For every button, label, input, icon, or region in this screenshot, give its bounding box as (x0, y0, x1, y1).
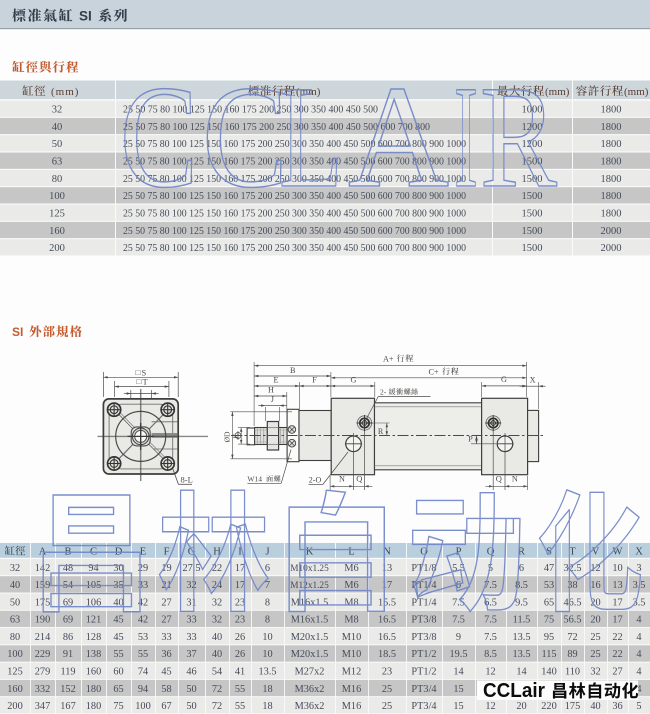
svg-text:(mm): (mm) (624, 86, 649, 98)
svg-text:25 50 75 80 100 125 150 160 17: 25 50 75 80 100 125 150 160 175 200 250 … (123, 243, 466, 254)
svg-text:11.5: 11.5 (513, 615, 531, 626)
svg-text:B: B (290, 366, 296, 375)
svg-text:W14: W14 (247, 474, 262, 483)
svg-text:25: 25 (590, 649, 600, 660)
svg-text:72: 72 (567, 632, 577, 643)
svg-text:160: 160 (49, 226, 65, 237)
svg-text:SI: SI (79, 9, 92, 24)
svg-text:13: 13 (382, 563, 392, 574)
svg-text:N: N (512, 475, 518, 484)
svg-text:2000: 2000 (601, 226, 622, 237)
svg-text:T: T (569, 547, 576, 558)
svg-text:27.5: 27.5 (182, 563, 200, 574)
svg-text:89: 89 (567, 649, 577, 660)
svg-text:27: 27 (612, 667, 622, 678)
svg-text:40: 40 (212, 649, 222, 660)
svg-text:10: 10 (262, 632, 272, 643)
svg-text:125: 125 (49, 209, 65, 220)
svg-text:4: 4 (636, 632, 641, 643)
svg-text:G: G (351, 376, 357, 385)
svg-text:160: 160 (86, 667, 101, 678)
svg-text:119: 119 (60, 667, 75, 678)
svg-text:25: 25 (382, 684, 392, 695)
svg-text:M10x1.25: M10x1.25 (290, 564, 329, 574)
svg-text:1800: 1800 (601, 174, 622, 185)
svg-text:M8: M8 (344, 615, 358, 626)
svg-text:M10: M10 (342, 649, 361, 660)
svg-text:32: 32 (590, 667, 600, 678)
svg-text:13: 13 (612, 580, 622, 591)
svg-text:65: 65 (113, 684, 123, 695)
svg-text:PT1/4: PT1/4 (411, 597, 436, 608)
svg-text:23: 23 (235, 615, 245, 626)
svg-text:J: J (265, 547, 269, 558)
svg-text:17: 17 (235, 580, 245, 591)
svg-text:F: F (312, 376, 317, 385)
svg-text:100: 100 (7, 649, 22, 660)
svg-text:2-O: 2-O (309, 476, 322, 485)
svg-text:T: T (143, 377, 149, 387)
svg-text:80: 80 (10, 632, 20, 643)
svg-text:55: 55 (235, 684, 245, 695)
svg-text:26: 26 (235, 632, 245, 643)
svg-text:20: 20 (516, 701, 526, 712)
svg-text:M20x1.5: M20x1.5 (291, 632, 328, 643)
svg-text:17: 17 (612, 597, 622, 608)
svg-text:55: 55 (235, 701, 245, 712)
svg-text:M36x2: M36x2 (295, 701, 325, 712)
svg-text:C+: C+ (429, 367, 439, 376)
svg-text:200: 200 (7, 701, 22, 712)
svg-text:46.5: 46.5 (563, 597, 581, 608)
svg-text:125: 125 (7, 667, 22, 678)
svg-text:1800: 1800 (601, 122, 622, 133)
svg-text:94: 94 (88, 563, 98, 574)
svg-text:121: 121 (86, 615, 101, 626)
svg-text:H: H (213, 547, 221, 558)
svg-text:32: 32 (10, 563, 20, 574)
svg-text:75: 75 (113, 701, 123, 712)
svg-text:G: G (501, 375, 507, 384)
svg-text:1800: 1800 (601, 209, 622, 220)
svg-text:47: 47 (544, 563, 554, 574)
svg-text:159: 159 (35, 580, 50, 591)
svg-text:I: I (454, 55, 478, 218)
svg-text:SI: SI (12, 325, 23, 339)
svg-text:2000: 2000 (601, 243, 622, 254)
svg-text:17: 17 (235, 563, 245, 574)
svg-text:36: 36 (161, 649, 171, 660)
svg-text:10: 10 (612, 563, 622, 574)
svg-text:19.5: 19.5 (449, 649, 467, 660)
svg-text:46: 46 (186, 667, 196, 678)
svg-text:10: 10 (262, 649, 272, 660)
svg-text:Q: Q (496, 474, 502, 484)
svg-text:50: 50 (186, 701, 196, 712)
svg-text:138: 138 (86, 649, 101, 660)
svg-text:23: 23 (382, 667, 392, 678)
svg-text:PT3/4: PT3/4 (411, 684, 436, 695)
svg-text:100: 100 (135, 701, 150, 712)
svg-text:67: 67 (161, 701, 171, 712)
svg-text:63: 63 (10, 615, 20, 626)
svg-text:17: 17 (382, 580, 392, 591)
svg-text:ØD: ØD (223, 431, 232, 442)
svg-text:9.5: 9.5 (515, 597, 528, 608)
svg-text:C: C (202, 55, 288, 218)
svg-text:45: 45 (113, 615, 123, 626)
svg-text:15: 15 (453, 701, 463, 712)
svg-text:58: 58 (161, 684, 171, 695)
svg-text:9: 9 (456, 632, 461, 643)
svg-text:K: K (233, 433, 241, 438)
svg-text:15: 15 (453, 684, 463, 695)
svg-text:X: X (635, 547, 643, 558)
svg-text:A+: A+ (383, 354, 394, 363)
svg-text:152: 152 (60, 684, 75, 695)
svg-text:160: 160 (7, 684, 22, 695)
svg-text:2-: 2- (380, 388, 387, 397)
svg-text:54: 54 (212, 667, 222, 678)
svg-text:32: 32 (212, 615, 222, 626)
svg-text:175: 175 (565, 701, 580, 712)
svg-text:140: 140 (541, 667, 556, 678)
svg-text:8: 8 (265, 615, 270, 626)
svg-text:A: A (348, 55, 449, 218)
svg-text:214: 214 (35, 632, 50, 643)
svg-text:P: P (468, 434, 473, 443)
svg-text:12: 12 (485, 701, 495, 712)
svg-text:220: 220 (541, 701, 556, 712)
svg-text:8.5: 8.5 (484, 649, 497, 660)
svg-text:110: 110 (565, 667, 580, 678)
svg-text:75: 75 (544, 615, 554, 626)
svg-text:53: 53 (544, 580, 554, 591)
svg-text:36: 36 (612, 701, 622, 712)
svg-text:M12: M12 (342, 667, 361, 678)
svg-text:PT3/8: PT3/8 (411, 615, 436, 626)
svg-text:4: 4 (636, 667, 641, 678)
svg-text:45: 45 (161, 667, 171, 678)
svg-text:M6: M6 (344, 580, 358, 591)
svg-text:M16x1.5: M16x1.5 (291, 597, 328, 608)
svg-text:1800: 1800 (601, 139, 622, 150)
svg-text:16: 16 (590, 580, 600, 591)
svg-text:G: G (188, 547, 196, 558)
svg-text:18: 18 (262, 701, 272, 712)
svg-text:M16: M16 (342, 684, 361, 695)
svg-text:86: 86 (63, 632, 73, 643)
svg-text:33: 33 (186, 632, 196, 643)
svg-text:13.5: 13.5 (258, 667, 276, 678)
svg-text:14: 14 (516, 667, 526, 678)
svg-text:20: 20 (590, 615, 600, 626)
svg-text:115: 115 (541, 649, 556, 660)
svg-text:7.5: 7.5 (452, 615, 465, 626)
svg-text:K: K (306, 547, 314, 558)
svg-text:E: E (140, 547, 146, 558)
svg-text:60: 60 (113, 667, 123, 678)
svg-text:1500: 1500 (522, 243, 543, 254)
svg-text:R: R (480, 55, 557, 218)
svg-text:1500: 1500 (522, 226, 543, 237)
svg-text:190: 190 (35, 615, 50, 626)
svg-text:41: 41 (235, 667, 245, 678)
svg-text:69: 69 (63, 615, 73, 626)
svg-text:180: 180 (86, 684, 101, 695)
svg-text:32: 32 (186, 580, 196, 591)
svg-text:C: C (120, 55, 198, 218)
svg-text:142: 142 (35, 563, 50, 574)
svg-text:□: □ (136, 368, 141, 377)
svg-text:74: 74 (138, 667, 148, 678)
svg-text:M16: M16 (342, 701, 361, 712)
svg-text:13.5: 13.5 (512, 649, 530, 660)
svg-text:347: 347 (35, 701, 50, 712)
svg-text:16.5: 16.5 (378, 632, 396, 643)
svg-text:W: W (613, 547, 623, 558)
svg-text:72: 72 (212, 684, 222, 695)
svg-text:15.5: 15.5 (378, 597, 396, 608)
svg-text:18: 18 (262, 684, 272, 695)
svg-text:L: L (348, 547, 354, 558)
svg-text:40: 40 (590, 701, 600, 712)
svg-text:M8: M8 (344, 597, 358, 608)
svg-text:167: 167 (60, 701, 75, 712)
svg-text:279: 279 (35, 667, 50, 678)
svg-text:37: 37 (186, 649, 196, 660)
svg-text:53: 53 (138, 632, 148, 643)
svg-text:30: 30 (113, 563, 123, 574)
svg-text:12: 12 (485, 667, 495, 678)
svg-text:M10: M10 (342, 632, 361, 643)
svg-text:80: 80 (52, 174, 63, 185)
svg-text:1800: 1800 (601, 105, 622, 116)
svg-text:229: 229 (35, 649, 50, 660)
svg-text:65: 65 (544, 597, 554, 608)
svg-text:1800: 1800 (601, 157, 622, 168)
svg-text:PT1/2: PT1/2 (411, 649, 436, 660)
svg-text:72: 72 (212, 701, 222, 712)
svg-text:M36x2: M36x2 (295, 684, 325, 695)
svg-text:PT1/8: PT1/8 (411, 563, 436, 574)
svg-text:6: 6 (265, 563, 270, 574)
svg-text:40: 40 (10, 580, 20, 591)
svg-text:40: 40 (212, 632, 222, 643)
svg-text:332: 332 (35, 684, 50, 695)
svg-text:31: 31 (186, 597, 196, 608)
svg-text:91: 91 (63, 649, 73, 660)
svg-text:M6: M6 (344, 563, 358, 574)
svg-text:25: 25 (590, 632, 600, 643)
svg-text:17: 17 (612, 615, 622, 626)
svg-text:42: 42 (138, 615, 148, 626)
svg-text:55: 55 (138, 649, 148, 660)
svg-text:100: 100 (49, 191, 65, 202)
svg-text:F: F (164, 547, 170, 558)
svg-text:175: 175 (35, 597, 50, 608)
svg-text:56.5: 56.5 (563, 615, 581, 626)
svg-text:22: 22 (612, 632, 622, 643)
svg-text:PT1/2: PT1/2 (411, 667, 436, 678)
svg-text:CCLair: CCLair (483, 680, 545, 702)
svg-text:Q: Q (356, 474, 362, 484)
svg-text:N: N (339, 475, 345, 484)
svg-text:33: 33 (161, 632, 171, 643)
svg-text:M16x1.5: M16x1.5 (291, 615, 328, 626)
svg-text:R: R (378, 427, 384, 436)
svg-text:25: 25 (382, 701, 392, 712)
svg-text:22: 22 (612, 649, 622, 660)
svg-text:4: 4 (636, 615, 641, 626)
svg-text:25 50 75 80 100 125 150 160 17: 25 50 75 80 100 125 150 160 175 200 250 … (123, 226, 466, 237)
svg-text:45: 45 (113, 632, 123, 643)
svg-text:E: E (273, 376, 278, 385)
svg-text:□: □ (137, 377, 142, 386)
svg-text:18.5: 18.5 (378, 649, 396, 660)
svg-text:13.5: 13.5 (512, 632, 530, 643)
svg-text:27: 27 (161, 615, 171, 626)
svg-text:X: X (530, 375, 536, 384)
svg-text:200: 200 (49, 243, 65, 254)
svg-text:3: 3 (636, 563, 641, 574)
svg-text:5: 5 (636, 701, 641, 712)
svg-text:7.5: 7.5 (484, 632, 497, 643)
svg-text:95: 95 (544, 632, 554, 643)
svg-text:4: 4 (636, 649, 641, 660)
svg-text:50: 50 (52, 139, 63, 150)
svg-text:180: 180 (86, 701, 101, 712)
svg-text:(mm): (mm) (51, 86, 79, 98)
svg-text:55: 55 (113, 649, 123, 660)
svg-text:27: 27 (161, 597, 171, 608)
svg-text:8: 8 (265, 597, 270, 608)
svg-text:M12x1.25: M12x1.25 (290, 581, 329, 591)
svg-text:L: L (279, 55, 343, 218)
svg-text:32: 32 (52, 105, 63, 116)
svg-text:48: 48 (63, 563, 73, 574)
svg-text:63: 63 (52, 157, 63, 168)
svg-text:7.5: 7.5 (484, 615, 497, 626)
svg-text:14: 14 (453, 667, 463, 678)
svg-text:8-L: 8-L (181, 474, 193, 484)
svg-text:50: 50 (186, 684, 196, 695)
svg-text:6: 6 (519, 563, 524, 574)
svg-text:M27x2: M27x2 (295, 667, 325, 678)
svg-text:1800: 1800 (601, 191, 622, 202)
svg-text:PT3/4: PT3/4 (411, 701, 436, 712)
svg-text:33: 33 (186, 615, 196, 626)
svg-text:7: 7 (265, 580, 270, 591)
svg-text:32: 32 (212, 597, 222, 608)
svg-text:22: 22 (212, 563, 222, 574)
svg-text:128: 128 (86, 632, 101, 643)
svg-text:40: 40 (52, 122, 63, 133)
svg-text:PT3/8: PT3/8 (411, 632, 436, 643)
svg-text:16.5: 16.5 (378, 615, 396, 626)
svg-text:94: 94 (138, 684, 148, 695)
svg-text:23: 23 (235, 597, 245, 608)
svg-text:H: H (268, 386, 274, 395)
svg-text:Q: Q (487, 547, 495, 558)
svg-text:26: 26 (235, 649, 245, 660)
svg-text:50: 50 (10, 597, 20, 608)
svg-text:M20x1.5: M20x1.5 (291, 649, 328, 660)
